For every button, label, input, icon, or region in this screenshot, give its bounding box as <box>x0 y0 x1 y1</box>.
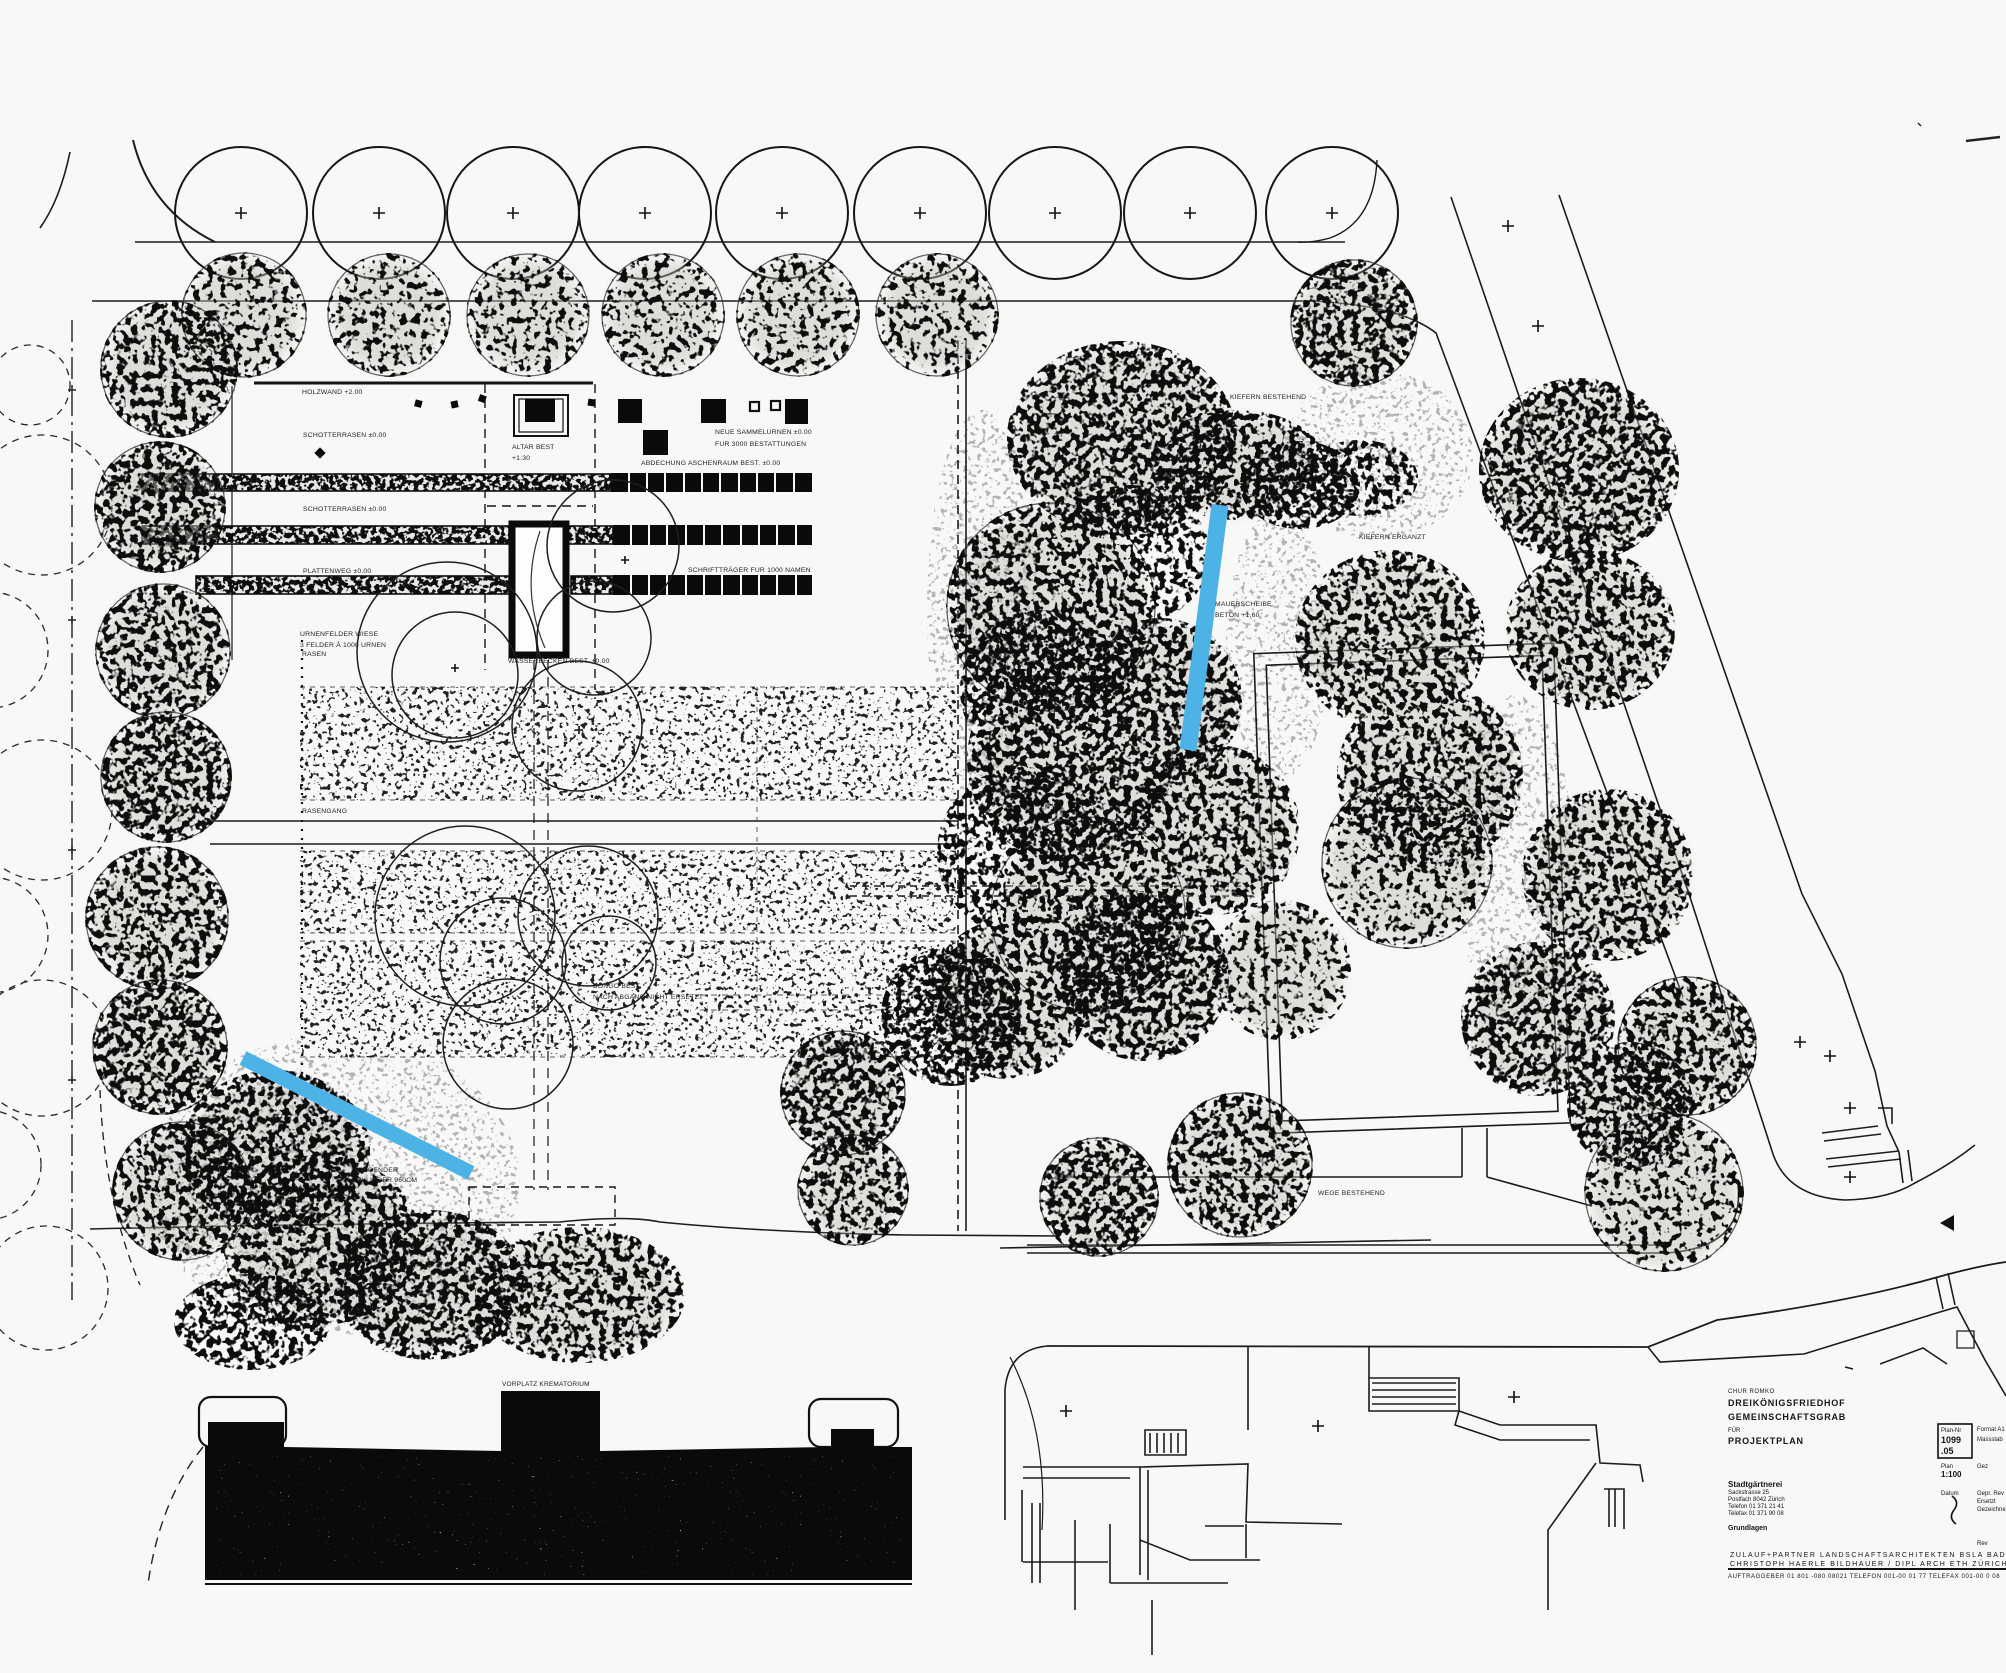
svg-text:WASSERBECKEN BEST. ±0.00: WASSERBECKEN BEST. ±0.00 <box>508 658 610 665</box>
svg-text:Rev: Rev <box>1977 1541 1988 1547</box>
svg-text:BONGO BEST.: BONGO BEST. <box>593 983 641 990</box>
svg-text:SCHOTTERRASEN ±0.00: SCHOTTERRASEN ±0.00 <box>303 506 386 513</box>
svg-text:Grundlagen: Grundlagen <box>1728 1525 1767 1532</box>
svg-text:WEGE BESTEHEND: WEGE BESTEHEND <box>1318 1190 1385 1197</box>
svg-text:CHUR ROMKO: CHUR ROMKO <box>1728 1389 1775 1395</box>
svg-text:Massstab: Massstab <box>1977 1437 2003 1443</box>
svg-text:HOLZWAND +2.00: HOLZWAND +2.00 <box>302 389 363 396</box>
svg-text:FUR 3000 BESTATTUNGEN: FUR 3000 BESTATTUNGEN <box>715 441 806 448</box>
svg-text:ALTAR BEST: ALTAR BEST <box>512 444 555 451</box>
svg-text:LIEGENDER: LIEGENDER <box>357 1167 398 1174</box>
svg-text:FÜR: FÜR <box>1728 1427 1741 1434</box>
svg-text:VORPLATZ KREMATORIUM: VORPLATZ KREMATORIUM <box>502 1381 590 1388</box>
svg-text:Gezeichnet: Gezeichnet <box>1977 1507 2006 1513</box>
svg-text:ZULAUF+PARTNER LANDSCHAFTSARCH: ZULAUF+PARTNER LANDSCHAFTSARCHITEKTEN BS… <box>1730 1552 2006 1559</box>
svg-text:Stadtgärtnerei: Stadtgärtnerei <box>1728 1480 1782 1489</box>
svg-text:ZYLINDER 960CM: ZYLINDER 960CM <box>357 1177 417 1184</box>
svg-text:AUFTRAGGEBER 01 801 -080 08021: AUFTRAGGEBER 01 801 -080 08021 TELEFON 0… <box>1728 1574 2000 1580</box>
svg-text:Plan-Nr: Plan-Nr <box>1941 1428 1961 1434</box>
svg-text:1:100: 1:100 <box>1941 1470 1962 1479</box>
svg-text:ABDECHUNG ASCHENRAUM BEST. ±0.: ABDECHUNG ASCHENRAUM BEST. ±0.00 <box>641 460 780 467</box>
svg-text:RASENGANG: RASENGANG <box>302 808 347 815</box>
svg-text:Datum: Datum <box>1941 1491 1959 1497</box>
svg-text:1099: 1099 <box>1941 1435 1961 1445</box>
svg-text:.05: .05 <box>1941 1446 1954 1456</box>
svg-text:DREIKÖNIGSFRIEDHOF: DREIKÖNIGSFRIEDHOF <box>1728 1398 1845 1408</box>
svg-text:NACH ABGANG NICHT ERSETZT: NACH ABGANG NICHT ERSETZT <box>593 994 703 1001</box>
svg-text:Telefon 01 371 21 41: Telefon 01 371 21 41 <box>1728 1504 1785 1510</box>
svg-text:Gepr. Rev: Gepr. Rev <box>1977 1491 2004 1497</box>
svg-text:KIEFERN ERGANZT: KIEFERN ERGANZT <box>1359 534 1426 541</box>
svg-text:+1.30: +1.30 <box>512 455 530 462</box>
svg-text:SCHRIFTTRÄGER FUR 1000 NAMEN: SCHRIFTTRÄGER FUR 1000 NAMEN <box>688 566 811 574</box>
svg-text:PLATTENWEG ±0.00: PLATTENWEG ±0.00 <box>303 568 371 575</box>
svg-text:GEMEINSCHAFTSGRAB: GEMEINSCHAFTSGRAB <box>1728 1412 1846 1422</box>
svg-text:Gez: Gez <box>1977 1464 1988 1470</box>
svg-text:URNENFELDER WIESE: URNENFELDER WIESE <box>300 631 378 638</box>
svg-text:Postfach 8042 Zürich: Postfach 8042 Zürich <box>1728 1497 1785 1503</box>
svg-text:NEUE SAMMELURNEN ±0.00: NEUE SAMMELURNEN ±0.00 <box>715 429 812 436</box>
svg-text:KIEFERN BESTEHEND: KIEFERN BESTEHEND <box>1230 394 1306 401</box>
svg-text:Telefax 01 371 90 08: Telefax 01 371 90 08 <box>1728 1511 1784 1517</box>
svg-text:SCHOTTERRASEN ±0.00: SCHOTTERRASEN ±0.00 <box>303 432 386 439</box>
svg-text:BETON +1.60: BETON +1.60 <box>1215 612 1260 619</box>
svg-text:Sackstrasse 25: Sackstrasse 25 <box>1728 1490 1770 1496</box>
svg-text:3 FELDER À 1000 URNEN: 3 FELDER À 1000 URNEN <box>300 640 386 649</box>
svg-text:RASEN: RASEN <box>302 651 326 658</box>
svg-text:MAUERSCHEIBE: MAUERSCHEIBE <box>1215 601 1272 608</box>
svg-text:CHRISTOPH HAERLE BILDHAUER /: CHRISTOPH HAERLE BILDHAUER / DIPL ARCH E… <box>1730 1560 2006 1568</box>
svg-text:Ersetzt: Ersetzt <box>1977 1499 1996 1505</box>
svg-text:Format A1: Format A1 <box>1977 1427 2005 1433</box>
svg-text:PROJEKTPLAN: PROJEKTPLAN <box>1728 1436 1804 1446</box>
